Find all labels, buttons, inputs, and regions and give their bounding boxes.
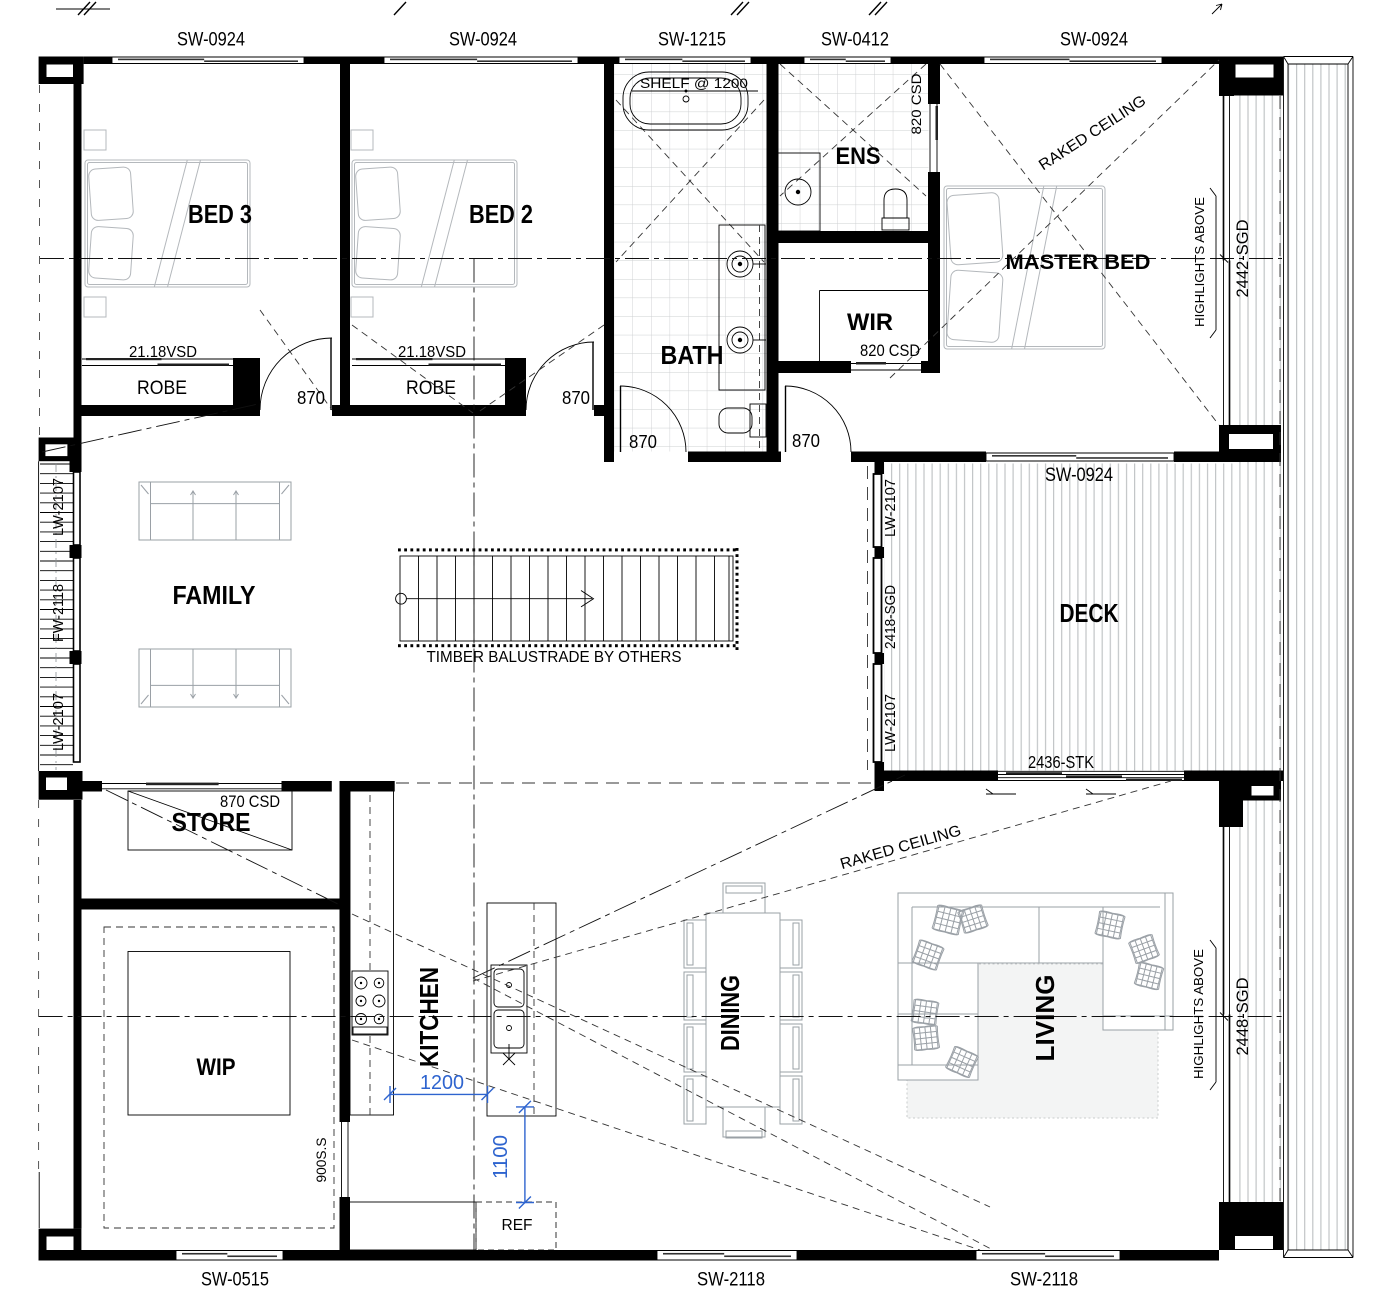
svg-text:BATH: BATH [661,340,724,370]
svg-text:870: 870 [562,388,590,408]
svg-text:2448-SGD: 2448-SGD [1233,978,1252,1056]
svg-text:BED 2: BED 2 [469,199,533,229]
svg-text:ROBE: ROBE [406,378,456,399]
svg-text:HIGHLIGHTS ABOVE: HIGHLIGHTS ABOVE [1193,197,1207,327]
svg-text:TIMBER BALUSTRADE BY OTHERS: TIMBER BALUSTRADE BY OTHERS [427,649,682,666]
svg-text:820 CSD: 820 CSD [860,341,920,360]
svg-text:ROBE: ROBE [137,378,187,399]
svg-text:SW-0924: SW-0924 [449,29,517,51]
svg-text:1200: 1200 [420,1072,464,1094]
svg-text:21.18VSD: 21.18VSD [129,344,197,361]
svg-text:2436-STK: 2436-STK [1028,752,1094,772]
svg-text:SW-2118: SW-2118 [697,1269,765,1291]
svg-text:DINING: DINING [715,975,745,1051]
svg-text:870 CSD: 870 CSD [220,792,280,811]
svg-text:SW-0924: SW-0924 [177,29,245,51]
svg-text:820 CSD: 820 CSD [908,74,924,135]
svg-text:SW-0515: SW-0515 [201,1269,269,1291]
svg-text:2442-SGD: 2442-SGD [1233,220,1252,298]
svg-text:900S.S: 900S.S [313,1138,329,1183]
svg-text:870: 870 [297,388,325,408]
svg-text:LW-2107: LW-2107 [51,693,67,751]
svg-text:LIVING: LIVING [1030,975,1060,1062]
svg-text:870: 870 [629,432,657,452]
svg-text:21.18VSD: 21.18VSD [398,344,466,361]
svg-text:2418-SGD: 2418-SGD [883,585,899,649]
svg-text:DECK: DECK [1060,598,1119,628]
svg-text:SW-0924: SW-0924 [1045,464,1113,486]
svg-text:WIP: WIP [197,1054,236,1081]
svg-text:REF: REF [502,1217,533,1234]
svg-text:870: 870 [792,431,820,451]
svg-text:HIGHLIGHTS ABOVE: HIGHLIGHTS ABOVE [1192,949,1206,1079]
svg-text:SW-0924: SW-0924 [1060,29,1128,51]
svg-text:FAMILY: FAMILY [173,580,256,610]
svg-text:BED 3: BED 3 [188,199,252,229]
svg-text:LW-2107: LW-2107 [883,694,899,752]
svg-text:SW-2118: SW-2118 [1010,1269,1078,1291]
svg-text:ENS: ENS [836,143,881,170]
svg-text:1100: 1100 [490,1135,512,1179]
svg-text:SW-0412: SW-0412 [821,29,889,51]
svg-text:LW-2107: LW-2107 [883,479,899,537]
svg-text:MASTER BED: MASTER BED [1006,251,1151,274]
svg-text:KITCHEN: KITCHEN [414,967,444,1067]
svg-text:SW-1215: SW-1215 [658,29,726,51]
svg-text:WIR: WIR [847,309,893,336]
svg-text:STORE: STORE [172,807,251,837]
svg-text:LW-2107: LW-2107 [51,478,67,536]
svg-text:SHELF @ 1200: SHELF @ 1200 [640,76,748,91]
svg-text:FW-2118: FW-2118 [51,584,67,642]
